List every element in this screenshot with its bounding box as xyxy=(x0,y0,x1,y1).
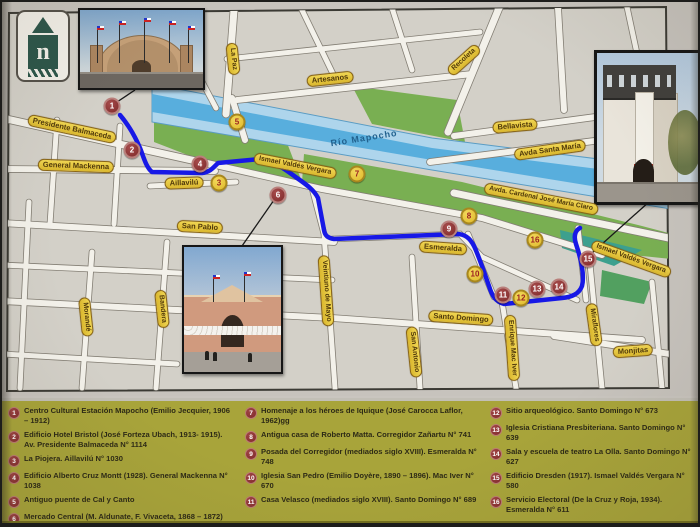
poi-marker-9: 9 xyxy=(441,221,458,238)
poi-marker-6: 6 xyxy=(270,187,287,204)
photo-mercado-central xyxy=(182,245,283,374)
legend-column-1: 1Centro Cultural Estación Mapocho (Emili… xyxy=(8,406,235,523)
street-foreground xyxy=(80,72,203,88)
legend-item-number: 1 xyxy=(8,407,20,419)
chile-flag xyxy=(119,21,126,25)
legend-item: 1Centro Cultural Estación Mapocho (Emili… xyxy=(8,406,235,426)
flag-pole xyxy=(213,277,214,302)
pavement xyxy=(184,352,281,372)
legend-item-text: Servicio Electoral (De la Cruz y Roja, 1… xyxy=(506,495,696,515)
building-corner-bay xyxy=(635,92,653,169)
map-page: n xyxy=(2,2,698,523)
chile-flag xyxy=(169,21,176,25)
poi-marker-14: 14 xyxy=(551,279,568,296)
market-awnings xyxy=(184,326,281,335)
chile-flag xyxy=(188,26,195,30)
photo-edificio-dresden xyxy=(594,50,698,205)
logo-letter: n xyxy=(28,35,58,69)
legend-column-2: 7Homenaje a los héroes de Iquique (José … xyxy=(245,406,481,512)
legend-item-text: Edificio Alberto Cruz Montt (1928). Gene… xyxy=(24,471,235,491)
legend-item-number: 7 xyxy=(245,407,257,419)
poi-marker-11: 11 xyxy=(495,287,512,304)
legend-item-number: 16 xyxy=(490,496,502,508)
flag-pole xyxy=(169,22,170,63)
legend-item-text: Antiguo puente de Cal y Canto xyxy=(24,495,135,505)
legend-item-number: 6 xyxy=(8,513,20,523)
legend-item-number: 3 xyxy=(8,455,20,467)
poi-marker-4: 4 xyxy=(192,156,209,173)
legend-item-number: 9 xyxy=(245,448,257,460)
poi-marker-10: 10 xyxy=(467,266,484,283)
legend-item-number: 13 xyxy=(490,424,502,436)
poi-marker-15: 15 xyxy=(580,251,597,268)
legend-item: 12Sitio arqueológico. Santo Domingo N° 6… xyxy=(490,406,696,419)
logo-triangle-icon xyxy=(32,17,54,33)
legend-item: 4Edificio Alberto Cruz Montt (1928). Gen… xyxy=(8,471,235,491)
legend-item-number: 10 xyxy=(245,472,257,484)
pedestrian xyxy=(213,352,217,361)
legend-item: 15Edificio Dresden (1917). Ismael Valdés… xyxy=(490,471,696,491)
legend-item-text: Mercado Central (M. Aldunate, F. Vivacet… xyxy=(24,512,223,522)
pedestrian xyxy=(248,353,252,362)
poi-marker-3: 3 xyxy=(211,175,228,192)
legend-item: 2Edificio Hotel Bristol (José Forteza Ub… xyxy=(8,430,235,450)
chile-flag xyxy=(244,272,251,276)
poi-marker-13: 13 xyxy=(529,281,546,298)
street-label: San Pablo xyxy=(177,220,224,234)
legend-item-text: La Piojera. Aillavilú N° 1030 xyxy=(24,454,123,464)
chile-flag xyxy=(213,275,220,279)
legend-column-3: 12Sitio arqueológico. Santo Domingo N° 6… xyxy=(490,406,696,519)
flag-pole xyxy=(188,27,189,63)
legend-item-number: 11 xyxy=(245,496,257,508)
poi-marker-7: 7 xyxy=(349,166,366,183)
legend-item-text: Sitio arqueológico. Santo Domingo N° 673 xyxy=(506,406,658,416)
legend-item: 11Casa Velasco (mediados siglo XVIII). S… xyxy=(245,495,481,508)
legend-item-text: Casa Velasco (mediados siglo XVIII). San… xyxy=(261,495,476,505)
poi-marker-2: 2 xyxy=(124,142,141,159)
street-tree xyxy=(668,110,698,176)
legend-item-number: 8 xyxy=(245,431,257,443)
street-foreground xyxy=(597,182,698,202)
legend-item-text: Iglesia San Pedro (Emilio Doyère, 1890 –… xyxy=(261,471,481,491)
legend-item: 5Antiguo puente de Cal y Canto xyxy=(8,495,235,508)
chile-flag xyxy=(144,18,151,22)
heritage-logo: n xyxy=(16,10,70,82)
legend-item-number: 14 xyxy=(490,448,502,460)
flag-pole xyxy=(119,22,120,63)
legend-item-text: Sala y escuela de teatro La Olla. Santo … xyxy=(506,447,696,467)
poi-marker-12: 12 xyxy=(513,290,530,307)
legend-item-number: 4 xyxy=(8,472,20,484)
legend-item: 16Servicio Electoral (De la Cruz y Roja,… xyxy=(490,495,696,515)
flag-pole xyxy=(97,27,98,63)
poi-marker-8: 8 xyxy=(461,208,478,225)
legend-item: 7Homenaje a los héroes de Iquique (José … xyxy=(245,406,481,426)
flag-pole xyxy=(144,19,145,63)
legend-item-text: Edificio Dresden (1917). Ismael Valdés V… xyxy=(506,471,696,491)
legend-item: 3La Piojera. Aillavilú N° 1030 xyxy=(8,454,235,467)
legend-item: 9Posada del Corregidor (mediados siglo X… xyxy=(245,447,481,467)
poi-marker-1: 1 xyxy=(104,98,121,115)
legend-item-number: 15 xyxy=(490,472,502,484)
chile-flag xyxy=(97,26,104,30)
legend-item-text: Edificio Hotel Bristol (José Forteza Uba… xyxy=(24,430,235,450)
photo-estacion-mapocho xyxy=(78,8,205,90)
market-pediment xyxy=(201,285,263,302)
legend-panel: 1Centro Cultural Estación Mapocho (Emili… xyxy=(2,398,698,522)
legend-item: 8Antigua casa de Roberto Matta. Corregid… xyxy=(245,430,481,443)
flag-pole xyxy=(244,275,245,303)
poi-marker-5: 5 xyxy=(229,114,246,131)
legend-item-text: Homenaje a los héroes de Iquique (José C… xyxy=(261,406,481,426)
station-tower xyxy=(180,45,193,74)
street-label: Aillavilú xyxy=(164,176,203,189)
legend-item-text: Centro Cultural Estación Mapocho (Emilio… xyxy=(24,406,235,426)
legend-item-number: 12 xyxy=(490,407,502,419)
legend-item-number: 2 xyxy=(8,431,20,443)
legend-item-text: Iglesia Cristiana Presbiteriana. Santo D… xyxy=(506,423,696,443)
legend-item-text: Antigua casa de Roberto Matta. Corregido… xyxy=(261,430,471,440)
legend-item: 14Sala y escuela de teatro La Olla. Sant… xyxy=(490,447,696,467)
legend-item-text: Posada del Corregidor (mediados siglo XV… xyxy=(261,447,481,467)
poi-marker-16: 16 xyxy=(527,232,544,249)
legend-item: 13Iglesia Cristiana Presbiteriana. Santo… xyxy=(490,423,696,443)
legend-item: 6Mercado Central (M. Aldunate, F. Vivace… xyxy=(8,512,235,523)
logo-hatch-icon xyxy=(28,69,58,77)
building-arch-entrance xyxy=(633,159,653,184)
legend-item-number: 5 xyxy=(8,496,20,508)
pedestrian xyxy=(205,351,209,360)
legend-item: 10Iglesia San Pedro (Emilio Doyère, 1890… xyxy=(245,471,481,491)
